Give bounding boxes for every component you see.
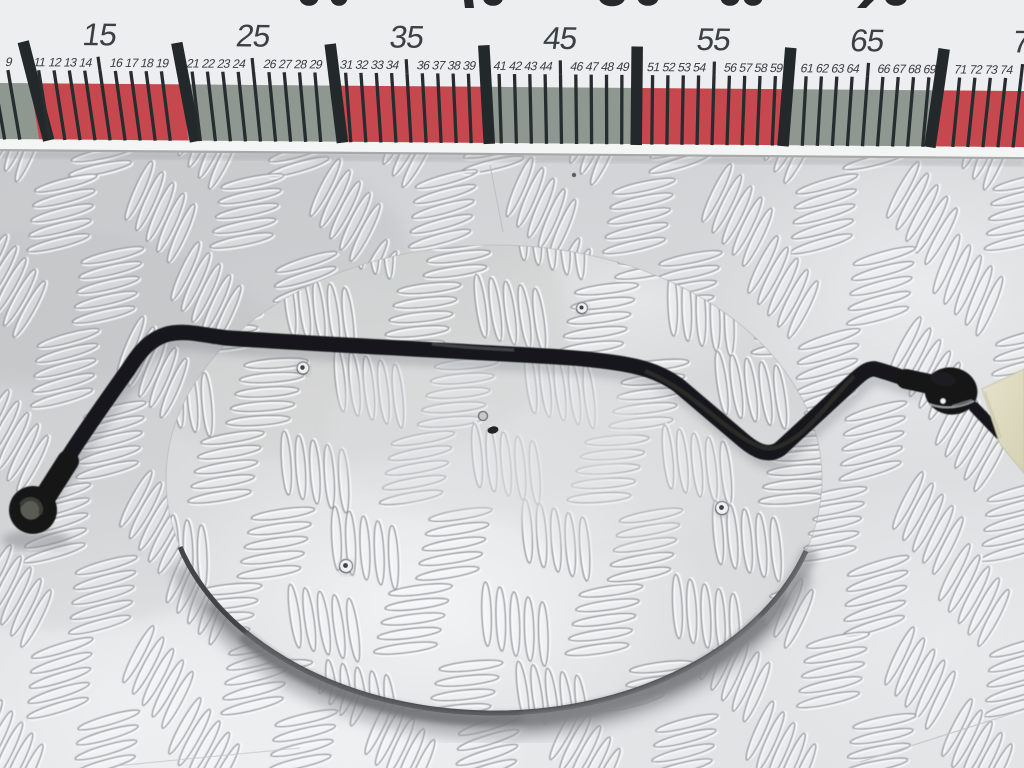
svg-text:15: 15 bbox=[81, 16, 119, 52]
svg-text:35: 35 bbox=[388, 19, 426, 55]
svg-text:45: 45 bbox=[541, 20, 579, 56]
svg-text:25: 25 bbox=[234, 18, 272, 54]
svg-text:65: 65 bbox=[848, 22, 886, 58]
svg-text:55: 55 bbox=[695, 21, 733, 57]
